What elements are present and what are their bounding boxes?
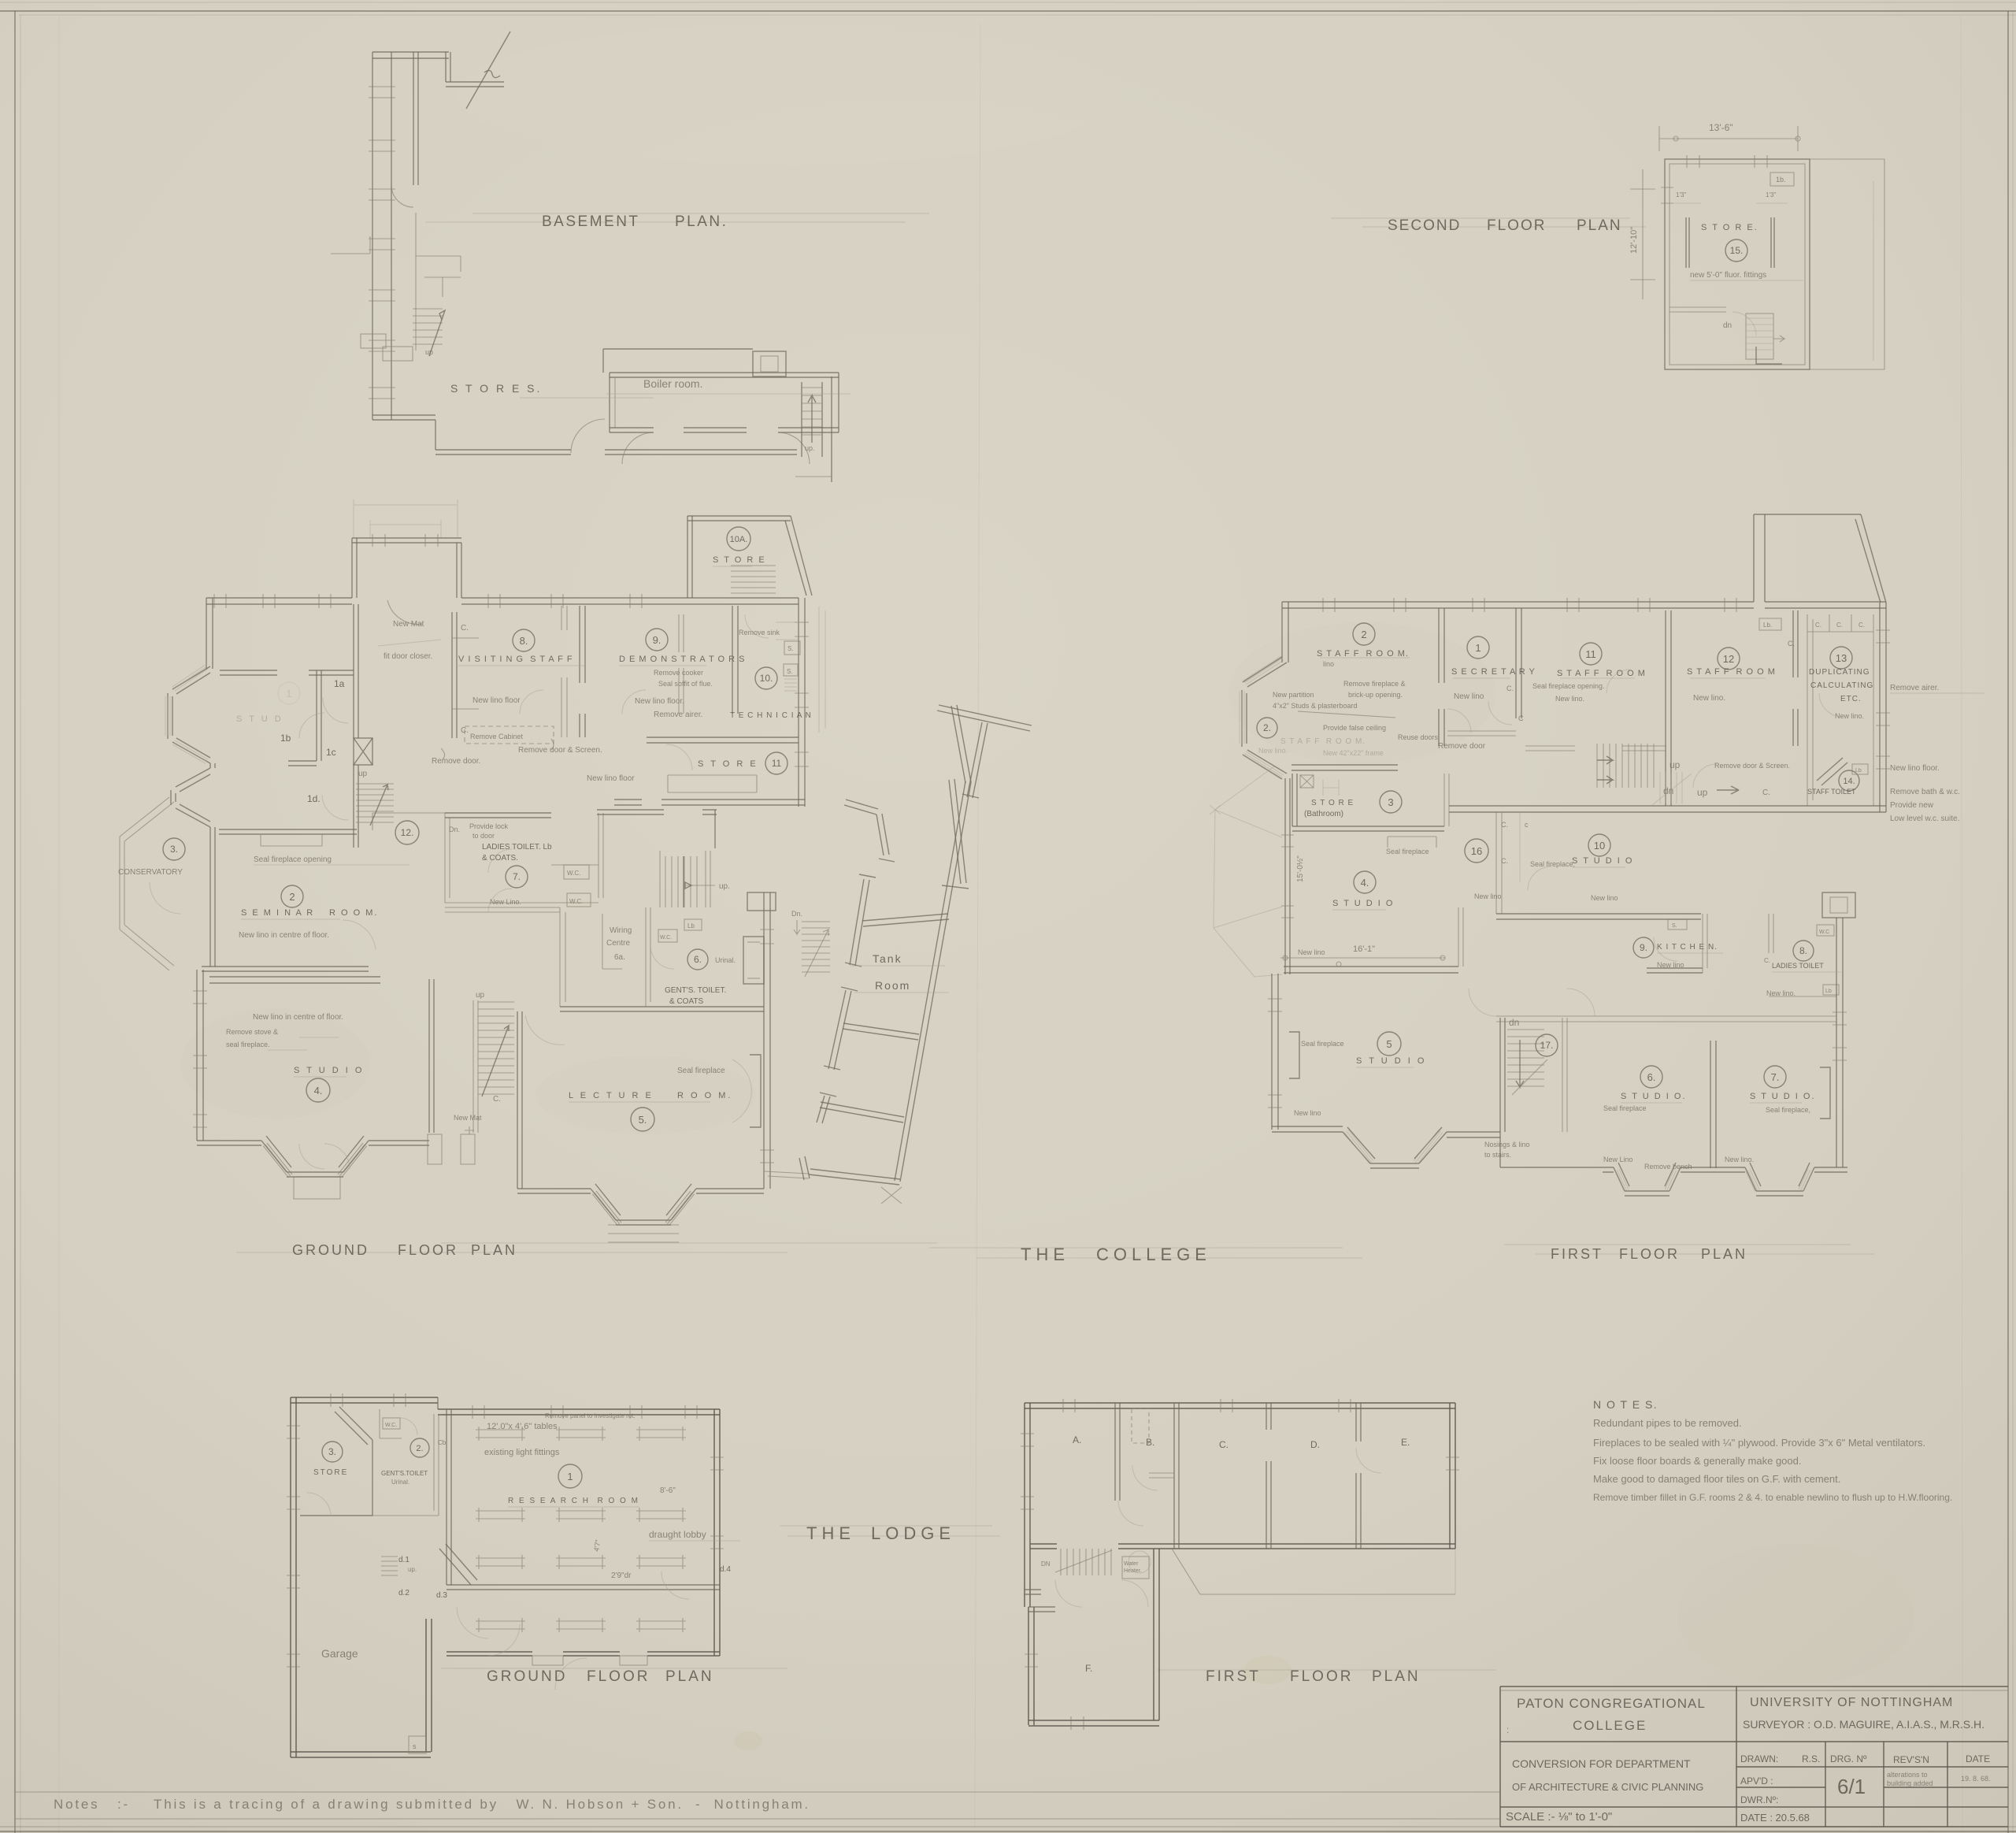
svg-text:New lino.: New lino.: [1555, 695, 1584, 703]
svg-text:& COATS: & COATS: [669, 997, 703, 1006]
svg-text:Low level w.c. suite.: Low level w.c. suite.: [1890, 814, 1959, 823]
svg-text:FIRST: FIRST: [1551, 1246, 1603, 1262]
svg-text:11: 11: [1585, 648, 1596, 660]
svg-text:Seal fireplace: Seal fireplace: [677, 1067, 725, 1075]
svg-text:DN: DN: [1041, 1560, 1051, 1568]
svg-text:W.C.: W.C.: [569, 898, 583, 905]
svg-text:Seal fireplace: Seal fireplace: [1603, 1104, 1647, 1112]
svg-text:1c: 1c: [326, 747, 336, 758]
svg-text:1: 1: [286, 688, 291, 699]
svg-text:Fireplaces to be sealed with ¼: Fireplaces to be sealed with ¼" plywood.…: [1593, 1437, 1925, 1449]
svg-text:C.: C.: [1815, 622, 1821, 629]
svg-text:V I S I T I N G S T A F F: V I S I T I N G S T A F F: [458, 655, 573, 664]
svg-text:New 42"x22" frame: New 42"x22" frame: [1323, 749, 1384, 757]
svg-text:CONSERVATORY: CONSERVATORY: [118, 868, 183, 877]
svg-text:PLAN: PLAN: [1577, 217, 1622, 234]
svg-text:T E C H N I C I A N: T E C H N I C I A N: [730, 711, 812, 720]
svg-text:C.: C.: [461, 624, 469, 633]
svg-text:K I T C H E N.: K I T C H E N.: [1657, 943, 1718, 952]
svg-text:1: 1: [567, 1471, 573, 1482]
svg-text:S.: S.: [787, 645, 794, 652]
svg-text:Remove bath & w.c.: Remove bath & w.c.: [1890, 788, 1960, 796]
svg-text:W.C.: W.C.: [567, 870, 580, 877]
svg-text:New lino.: New lino.: [1258, 747, 1288, 755]
svg-text:C.: C.: [1858, 622, 1865, 629]
svg-text:STAFF TOILET: STAFF TOILET: [1807, 788, 1856, 796]
svg-text:New partition: New partition: [1273, 691, 1314, 699]
svg-text:DUPLICATING: DUPLICATING: [1809, 668, 1870, 677]
svg-text:13: 13: [1836, 652, 1847, 664]
svg-text:S T U D I O: S T U D I O: [1356, 1056, 1426, 1066]
svg-text:alterations to: alterations to: [1887, 1771, 1928, 1779]
svg-text:New lino in centre of floor.: New lino in centre of floor.: [253, 1013, 343, 1022]
svg-text:Remove bench: Remove bench: [1644, 1163, 1692, 1171]
svg-text:New lino floor: New lino floor: [587, 774, 635, 783]
svg-text:1'3": 1'3": [1766, 191, 1776, 199]
svg-text:S T U D: S T U D: [236, 714, 283, 724]
svg-text:S.: S.: [787, 668, 793, 675]
svg-text:S T O R E: S T O R E: [1311, 799, 1354, 807]
svg-text:1'3": 1'3": [1676, 191, 1686, 199]
svg-text:(Bathroom): (Bathroom): [1304, 810, 1343, 818]
svg-text:THE: THE: [1021, 1245, 1069, 1264]
svg-text:DATE: DATE: [1966, 1753, 1990, 1764]
svg-text:Remove airer.: Remove airer.: [1890, 684, 1939, 692]
svg-text:Cb: Cb: [438, 1439, 447, 1446]
svg-text:SCALE :- ⅛" to 1'-0": SCALE :- ⅛" to 1'-0": [1506, 1810, 1612, 1824]
svg-text:Remove door & Screen.: Remove door & Screen.: [518, 746, 602, 755]
svg-text:COLLEGE: COLLEGE: [1096, 1245, 1211, 1264]
svg-text:3.: 3.: [170, 844, 178, 855]
svg-text:10: 10: [1594, 840, 1605, 852]
svg-text:Reuse doors: Reuse doors: [1398, 733, 1439, 741]
svg-text:draught lobby: draught lobby: [649, 1529, 706, 1540]
svg-text:FLOOR: FLOOR: [1290, 1668, 1353, 1685]
svg-text:DRG. Nº: DRG. Nº: [1830, 1753, 1867, 1764]
svg-text:S T O R E: S T O R E: [698, 759, 758, 769]
svg-text:Notes :- This is a tracin: Notes :- This is a tracing of a drawing …: [54, 1797, 810, 1812]
svg-text:PATON CONGREGATIONAL: PATON CONGREGATIONAL: [1517, 1696, 1706, 1711]
svg-text:B.: B.: [1146, 1437, 1154, 1448]
svg-text:Provide lock: Provide lock: [469, 822, 509, 830]
svg-text:Boiler room.: Boiler room.: [643, 377, 702, 390]
svg-text:Lb: Lb: [1855, 768, 1862, 774]
svg-text:GENT'S. TOILET.: GENT'S. TOILET.: [665, 986, 726, 995]
svg-text:R E S E A R C H R O O M: R E S E A R C H R O O M: [508, 1497, 639, 1505]
svg-text:S T O R E: S T O R E: [713, 555, 766, 565]
svg-text:FLOOR: FLOOR: [398, 1242, 458, 1258]
svg-text:1a: 1a: [334, 678, 345, 689]
svg-text:S T U D I O: S T U D I O: [1332, 899, 1394, 908]
svg-text:Remove sink: Remove sink: [739, 629, 780, 636]
svg-text:Provide new: Provide new: [1890, 801, 1934, 810]
svg-text:LADIES TOILET. Lb: LADIES TOILET. Lb: [482, 843, 552, 852]
svg-text:D.: D.: [1310, 1439, 1320, 1450]
svg-text:4.: 4.: [1361, 877, 1369, 889]
svg-text:up.: up.: [408, 1566, 417, 1573]
svg-text:FLOOR: FLOOR: [587, 1668, 650, 1685]
svg-text:8'-6": 8'-6": [660, 1486, 676, 1495]
svg-text::: :: [1506, 1724, 1509, 1735]
svg-text:C: C: [1518, 714, 1524, 722]
svg-text:W.C.: W.C.: [385, 1423, 397, 1428]
svg-text:s: s: [413, 1742, 417, 1750]
svg-text:New lino floor: New lino floor: [472, 696, 521, 705]
svg-text:up: up: [1669, 759, 1681, 770]
svg-text:Remove door & Screen.: Remove door & Screen.: [1714, 762, 1790, 770]
svg-text:R O O M.: R O O M.: [677, 1091, 732, 1100]
svg-text:FIRST: FIRST: [1206, 1668, 1261, 1685]
svg-text:Seal fireplace,: Seal fireplace,: [1766, 1106, 1810, 1114]
svg-text:17.: 17.: [1540, 1040, 1554, 1051]
svg-text:LADIES TOILET: LADIES TOILET: [1772, 962, 1824, 970]
svg-text:2.: 2.: [416, 1444, 423, 1453]
svg-text:L E C T U R E: L E C T U R E: [569, 1091, 654, 1100]
svg-text:fit door closer.: fit door closer.: [384, 652, 432, 661]
svg-text:Urinal.: Urinal.: [715, 956, 736, 964]
svg-text:S T O R E.: S T O R E.: [1701, 223, 1758, 232]
svg-text:dn: dn: [1723, 321, 1732, 330]
svg-text:Lb: Lb: [687, 922, 695, 929]
svg-text:S T A F F R O O M: S T A F F R O O M: [1687, 667, 1776, 677]
svg-text:6/1: 6/1: [1837, 1775, 1866, 1798]
svg-text:New Lino.: New Lino.: [490, 898, 521, 906]
svg-text:C.: C.: [1506, 685, 1514, 692]
svg-text:16: 16: [1471, 845, 1482, 857]
svg-text:9.: 9.: [1640, 942, 1647, 953]
svg-text:LODGE: LODGE: [871, 1523, 955, 1543]
svg-text:2: 2: [1361, 629, 1366, 640]
svg-text:7.: 7.: [513, 871, 521, 882]
svg-text:S T A F F R O O M: S T A F F R O O M: [1557, 669, 1646, 678]
svg-text:S T O R E S.: S T O R E S.: [450, 382, 542, 395]
svg-text:Seal fireplace: Seal fireplace: [1301, 1040, 1344, 1048]
svg-text:up.: up.: [805, 444, 815, 452]
svg-text:New lino.: New lino.: [1693, 694, 1725, 703]
svg-text:THE: THE: [806, 1523, 855, 1543]
svg-text:Remove fireplace &: Remove fireplace &: [1343, 680, 1406, 688]
svg-text:Remove stove &: Remove stove &: [226, 1028, 278, 1036]
svg-text:building added: building added: [1887, 1779, 1933, 1787]
svg-text:PLAN: PLAN: [665, 1668, 714, 1685]
svg-text:Remove Cabinet: Remove Cabinet: [470, 733, 524, 740]
svg-text:CALCULATING: CALCULATING: [1810, 681, 1873, 690]
svg-text:d.1: d.1: [398, 1556, 409, 1564]
svg-text:A.: A.: [1073, 1434, 1081, 1445]
svg-text:Remove timber fillet in G.F.: Remove timber fillet in G.F. rooms 2 & 4…: [1593, 1492, 1952, 1503]
svg-text:PLAN: PLAN: [471, 1242, 517, 1258]
svg-text:F.: F.: [1085, 1663, 1092, 1674]
svg-text:d.2: d.2: [398, 1589, 409, 1597]
svg-text:Nosings & lino: Nosings & lino: [1484, 1141, 1530, 1148]
svg-text:Garage: Garage: [321, 1647, 358, 1660]
svg-text:4"x2" Studs & plasterboard: 4"x2" Studs & plasterboard: [1273, 702, 1357, 710]
svg-text:New Lino: New Lino: [1603, 1156, 1633, 1163]
svg-text:2: 2: [289, 891, 295, 903]
svg-text:1b.: 1b.: [1776, 176, 1786, 184]
svg-text:New Mat: New Mat: [393, 620, 424, 629]
svg-text:C.: C.: [1762, 788, 1770, 797]
svg-text:New lino.: New lino.: [1725, 1156, 1754, 1163]
svg-text:ETC.: ETC.: [1840, 695, 1862, 703]
svg-text:up: up: [476, 991, 485, 1000]
svg-text:up: up: [1697, 787, 1708, 798]
svg-text:Seal fireplace opening.: Seal fireplace opening.: [1532, 682, 1605, 690]
svg-text:New lino: New lino: [1298, 948, 1325, 956]
svg-text:1d.: 1d.: [307, 793, 321, 804]
svg-text:OF ARCHITECTURE & CIVIC PLA: OF ARCHITECTURE & CIVIC PLANNING: [1512, 1781, 1703, 1793]
svg-text:PLAN: PLAN: [1701, 1246, 1747, 1262]
svg-text:Dn.: Dn.: [449, 826, 460, 833]
svg-text:Dn.: Dn.: [791, 910, 802, 918]
svg-text:Lb.: Lb.: [1763, 622, 1772, 629]
svg-text:5.: 5.: [639, 1114, 647, 1126]
svg-text:COLLEGE: COLLEGE: [1573, 1718, 1647, 1733]
svg-text:C.: C.: [1219, 1439, 1228, 1450]
svg-text:DWR.Nº:: DWR.Nº:: [1740, 1794, 1778, 1805]
svg-text:FLOOR: FLOOR: [1619, 1246, 1680, 1262]
svg-text:S T A F F R O O M.: S T A F F R O O M.: [1317, 649, 1409, 659]
svg-text:New Mat: New Mat: [454, 1114, 482, 1122]
svg-text:1b: 1b: [280, 733, 291, 744]
svg-text:10.: 10.: [760, 673, 773, 684]
svg-text:4.: 4.: [314, 1085, 323, 1096]
svg-text:14.: 14.: [1843, 777, 1855, 786]
svg-text:C.: C.: [461, 726, 469, 735]
svg-text:Urinal.: Urinal.: [391, 1479, 409, 1486]
svg-text:6.: 6.: [694, 954, 702, 965]
svg-text:13'-6": 13'-6": [1709, 122, 1733, 133]
svg-text:GROUND: GROUND: [487, 1668, 567, 1685]
svg-text:existing light fittings: existing light fittings: [484, 1448, 560, 1457]
svg-text:S T U D I O: S T U D I O: [1572, 856, 1633, 866]
svg-text:New lino floor.: New lino floor.: [1890, 764, 1940, 773]
svg-text:C.: C.: [493, 1095, 501, 1104]
svg-text:12'.0"x 4'.6" tables: 12'.0"x 4'.6" tables: [487, 1422, 558, 1431]
svg-text:New lino: New lino: [1454, 692, 1484, 701]
svg-text:SECOND: SECOND: [1388, 217, 1461, 234]
svg-text:C.: C.: [1836, 622, 1843, 629]
svg-text:Tank: Tank: [873, 952, 902, 965]
svg-text:Remove panel to investigate ro: Remove panel to investigate rot.: [545, 1412, 636, 1419]
svg-text:up: up: [358, 770, 368, 778]
svg-text:E.: E.: [1401, 1437, 1410, 1448]
svg-text:up: up: [425, 348, 433, 356]
svg-text:7.: 7.: [1771, 1071, 1780, 1083]
svg-text:S E C R E T A R Y: S E C R E T A R Y: [1451, 667, 1536, 677]
svg-text:Lb: Lb: [1825, 989, 1832, 994]
svg-text:S T U D I O: S T U D I O: [294, 1066, 364, 1075]
svg-text:8.: 8.: [1799, 945, 1807, 956]
svg-text:S E M I N A R: S E M I N A R: [241, 908, 314, 918]
svg-text:W.C.: W.C.: [660, 935, 672, 941]
svg-text:STORE: STORE: [313, 1468, 348, 1477]
svg-text:Remove door.: Remove door.: [432, 757, 480, 766]
svg-text:Seal fireplace opening: Seal fireplace opening: [254, 855, 332, 864]
svg-text:new 5'-0" fluor. fittings: new 5'-0" fluor. fittings: [1690, 271, 1766, 280]
svg-text:9.: 9.: [653, 634, 661, 646]
svg-text:12: 12: [1723, 653, 1734, 665]
svg-text:2'9"dr: 2'9"dr: [611, 1571, 632, 1580]
svg-text:seal fireplace.: seal fireplace.: [226, 1041, 270, 1048]
svg-text:dn: dn: [1509, 1017, 1519, 1028]
svg-text:REV'S'N: REV'S'N: [1893, 1754, 1929, 1765]
svg-text:Water: Water: [1124, 1561, 1139, 1567]
svg-text:DATE : 20.5.68: DATE : 20.5.68: [1740, 1812, 1810, 1824]
svg-text:Make good to damaged floor ti: Make good to damaged floor tiles on G.F.…: [1593, 1473, 1840, 1485]
svg-text:R.S.: R.S.: [1802, 1753, 1820, 1764]
svg-text:S T A F F R O O M.: S T A F F R O O M.: [1280, 737, 1366, 746]
svg-text:S T U D I O.: S T U D I O.: [1621, 1092, 1687, 1101]
svg-text:W.C: W.C: [1819, 929, 1829, 935]
svg-text:to stairs.: to stairs.: [1484, 1151, 1511, 1159]
svg-text:APV'D :: APV'D :: [1740, 1775, 1773, 1787]
svg-text:Seal soffit of flue.: Seal soffit of flue.: [658, 680, 713, 688]
svg-text:8.: 8.: [520, 635, 528, 647]
svg-text:New lino: New lino: [1294, 1109, 1321, 1117]
svg-text:S T U D I O.: S T U D I O.: [1750, 1092, 1816, 1101]
svg-text:d.3: d.3: [436, 1591, 447, 1600]
svg-text:Seal fireplace: Seal fireplace: [1386, 848, 1429, 855]
svg-text:BASEMENT: BASEMENT: [542, 213, 640, 230]
svg-text:brick-up opening.: brick-up opening.: [1348, 691, 1403, 699]
svg-text:1: 1: [1475, 642, 1480, 654]
svg-text:15'-0½": 15'-0½": [1296, 855, 1305, 882]
svg-text:c: c: [1525, 821, 1529, 829]
svg-text:up.: up.: [719, 882, 730, 891]
svg-text:Seal fireplace,: Seal fireplace,: [1530, 860, 1575, 868]
svg-text:New lino: New lino: [1591, 894, 1618, 902]
svg-text:6.: 6.: [1647, 1071, 1656, 1083]
svg-text:GENT'S.TOILET: GENT'S.TOILET: [381, 1470, 428, 1477]
svg-text:CONVERSION FOR DEPARTMENT: CONVERSION FOR DEPARTMENT: [1512, 1757, 1691, 1770]
svg-text:19. 8. 68.: 19. 8. 68.: [1961, 1775, 1991, 1783]
svg-text:PLAN.: PLAN.: [675, 213, 728, 230]
svg-text:to door: to door: [472, 832, 495, 840]
svg-text:Remove door: Remove door: [1438, 742, 1486, 751]
svg-text:C.: C.: [1788, 640, 1795, 647]
svg-text:d.4: d.4: [720, 1565, 731, 1574]
svg-text:New lino in centre of floor.: New lino in centre of floor.: [239, 931, 329, 940]
svg-text:D E M O N S T R A T O R S: D E M O N S T R A T O R S: [619, 655, 746, 664]
svg-text:Wiring: Wiring: [610, 926, 632, 935]
svg-text:11: 11: [772, 758, 782, 769]
svg-text:C.: C.: [1764, 957, 1770, 964]
svg-text:16'-1": 16'-1": [1353, 944, 1375, 954]
svg-text:New lino: New lino: [1474, 892, 1502, 900]
svg-text:New lino floor.: New lino floor.: [635, 697, 684, 706]
svg-text:GROUND: GROUND: [292, 1242, 369, 1258]
svg-text:UNIVERSITY OF NOTTINGHAM: UNIVERSITY OF NOTTINGHAM: [1750, 1696, 1953, 1709]
svg-text:Redundant pipes to be removed.: Redundant pipes to be removed.: [1593, 1417, 1742, 1429]
svg-text:15.: 15.: [1730, 245, 1744, 256]
svg-text:R O O M.: R O O M.: [329, 908, 378, 918]
svg-text:12'-10": 12'-10": [1629, 227, 1639, 254]
svg-text:10A.: 10A.: [730, 535, 748, 544]
svg-text:FLOOR: FLOOR: [1487, 217, 1546, 234]
svg-text:N O T E S.: N O T E S.: [1593, 1398, 1658, 1411]
svg-text:Fix loose floor boards & gener: Fix loose floor boards & generally make …: [1593, 1455, 1801, 1467]
svg-text:12.: 12.: [401, 827, 414, 838]
svg-text:DRAWN:: DRAWN:: [1740, 1753, 1778, 1764]
svg-text:Provide false ceiling: Provide false ceiling: [1323, 724, 1386, 732]
svg-text:& COATS.: & COATS.: [482, 854, 518, 863]
svg-text:3.: 3.: [328, 1446, 336, 1457]
svg-text:Room: Room: [875, 979, 910, 992]
svg-text:New lino.: New lino.: [1835, 712, 1864, 720]
svg-text:3: 3: [1388, 796, 1393, 808]
svg-text:2.: 2.: [1263, 722, 1271, 733]
svg-text:Remove airer.: Remove airer.: [654, 711, 702, 719]
svg-text:Centre: Centre: [606, 939, 630, 948]
svg-text:S.: S.: [1672, 923, 1677, 929]
svg-text:PLAN: PLAN: [1372, 1668, 1421, 1685]
svg-text:5: 5: [1386, 1038, 1392, 1050]
svg-text:6a.: 6a.: [614, 953, 625, 962]
svg-text:SURVEYOR : O.D. MAGUIRE, A.I.: SURVEYOR : O.D. MAGUIRE, A.I.A.S., M.R.S…: [1743, 1718, 1984, 1731]
svg-text:lino: lino: [1323, 660, 1334, 668]
